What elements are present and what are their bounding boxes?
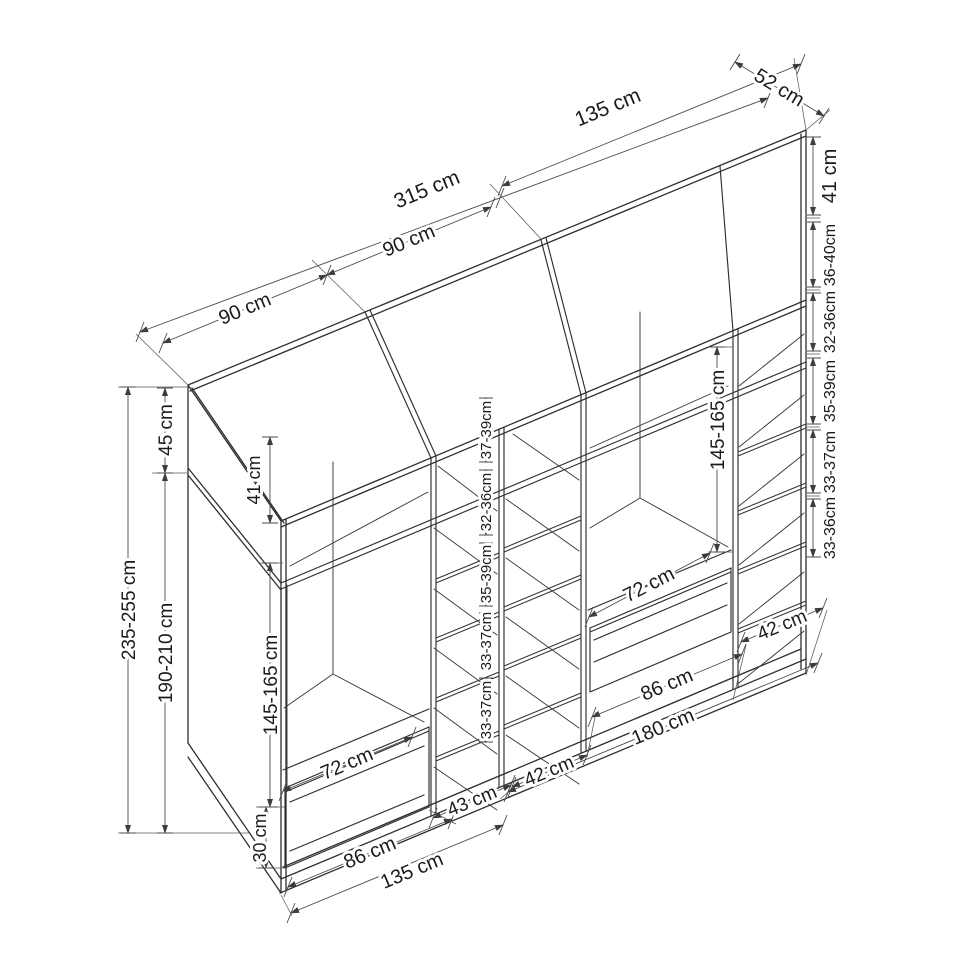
dim-label-center-4: 33-37cm xyxy=(478,612,495,670)
dim-label-315: 315 cm xyxy=(391,166,463,214)
dim-label-45: 45 cm xyxy=(156,404,177,456)
wardrobe-dimension-diagram: 90 cm 90 cm 315 cm 135 cm 52 cm 41 cm 36… xyxy=(0,0,960,960)
dim-label-86-right: 86 cm xyxy=(638,664,697,705)
cabinet-outline xyxy=(188,130,806,893)
dim-label-center-3: 35-39cm xyxy=(478,545,495,603)
dim-label-right-3337: 33-37cm xyxy=(822,431,839,493)
dim-label-135-top: 135 cm xyxy=(572,84,644,132)
dim-label-90-mid: 90 cm xyxy=(380,220,439,261)
dim-label-center-2: 32-36cm xyxy=(478,473,495,531)
dividers-and-shelf-frame xyxy=(281,166,806,816)
dim-label-box-41: 41 cm xyxy=(244,455,264,504)
diagram-canvas: 90 cm 90 cm 315 cm 135 cm 52 cm 41 cm 36… xyxy=(0,0,960,960)
dim-label-right-41: 41 cm xyxy=(819,149,841,203)
dim-line-315 xyxy=(140,98,768,332)
dim-label-hanging-left: 145-165 cm xyxy=(261,635,282,735)
dim-label-52: 52 cm xyxy=(750,65,808,112)
dim-label-right-3539: 35-39cm xyxy=(822,360,839,422)
dim-label-hanging-right: 145-165 cm xyxy=(708,370,729,470)
drawer-boxes xyxy=(283,550,731,868)
dim-label-total-height: 235-255 cm xyxy=(119,560,140,660)
dim-label-72-right: 72 cm xyxy=(620,563,679,607)
dim-label-right-3336: 33-36cm xyxy=(822,497,839,559)
dim-label-190-210: 190-210 cm xyxy=(156,603,177,703)
dim-label-center-5: 33-37cm xyxy=(478,681,495,739)
dim-label-42-right: 42 cm xyxy=(754,606,810,645)
dim-label-right-3236: 32-36cm xyxy=(822,291,839,353)
dim-label-42-mid: 42 cm xyxy=(521,752,577,791)
dim-label-30: 30 cm xyxy=(250,813,270,862)
dim-label-90-left: 90 cm xyxy=(216,288,275,329)
dim-label-180: 180 cm xyxy=(628,704,697,749)
dim-label-right-3640: 36-40cm xyxy=(822,224,839,286)
dim-label-center-1: 37-39cm xyxy=(478,401,495,459)
